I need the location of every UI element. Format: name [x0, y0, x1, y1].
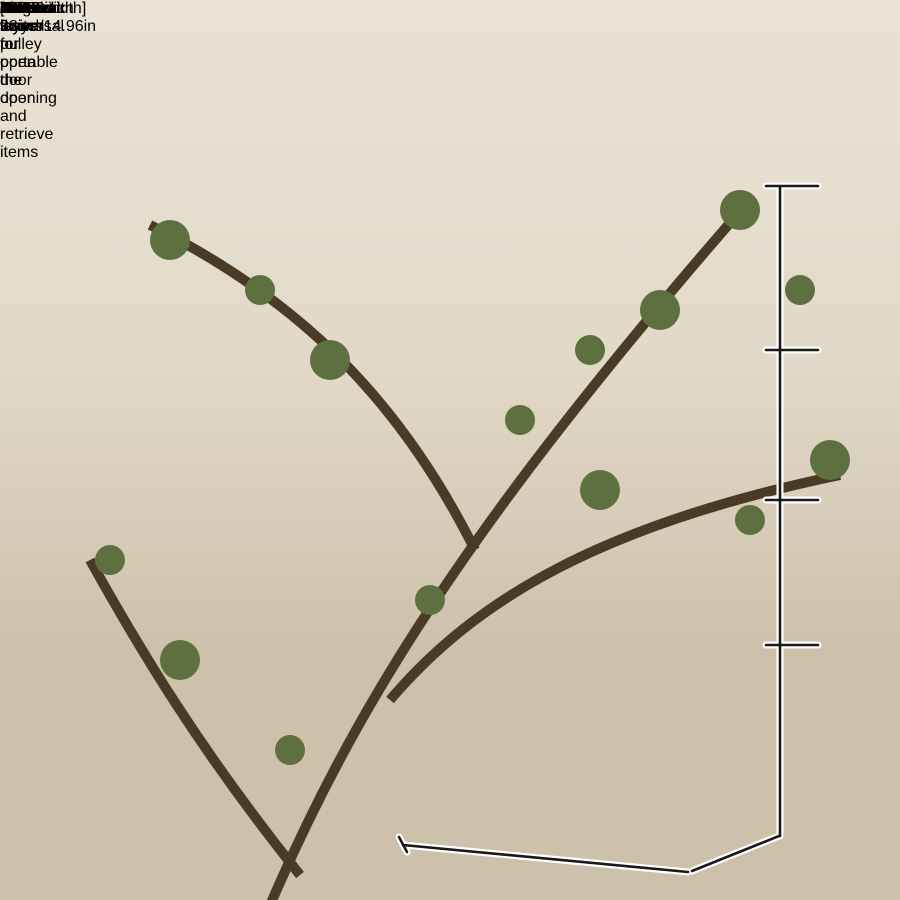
side-width-text: Side width 38cm/14.96in	[0, 0, 96, 36]
product-showcase-image: Four layers 133cm 52.36in Three layers 1…	[0, 0, 900, 900]
dimension-lines	[0, 0, 900, 900]
caption-line: door and retrieve items	[0, 90, 53, 161]
